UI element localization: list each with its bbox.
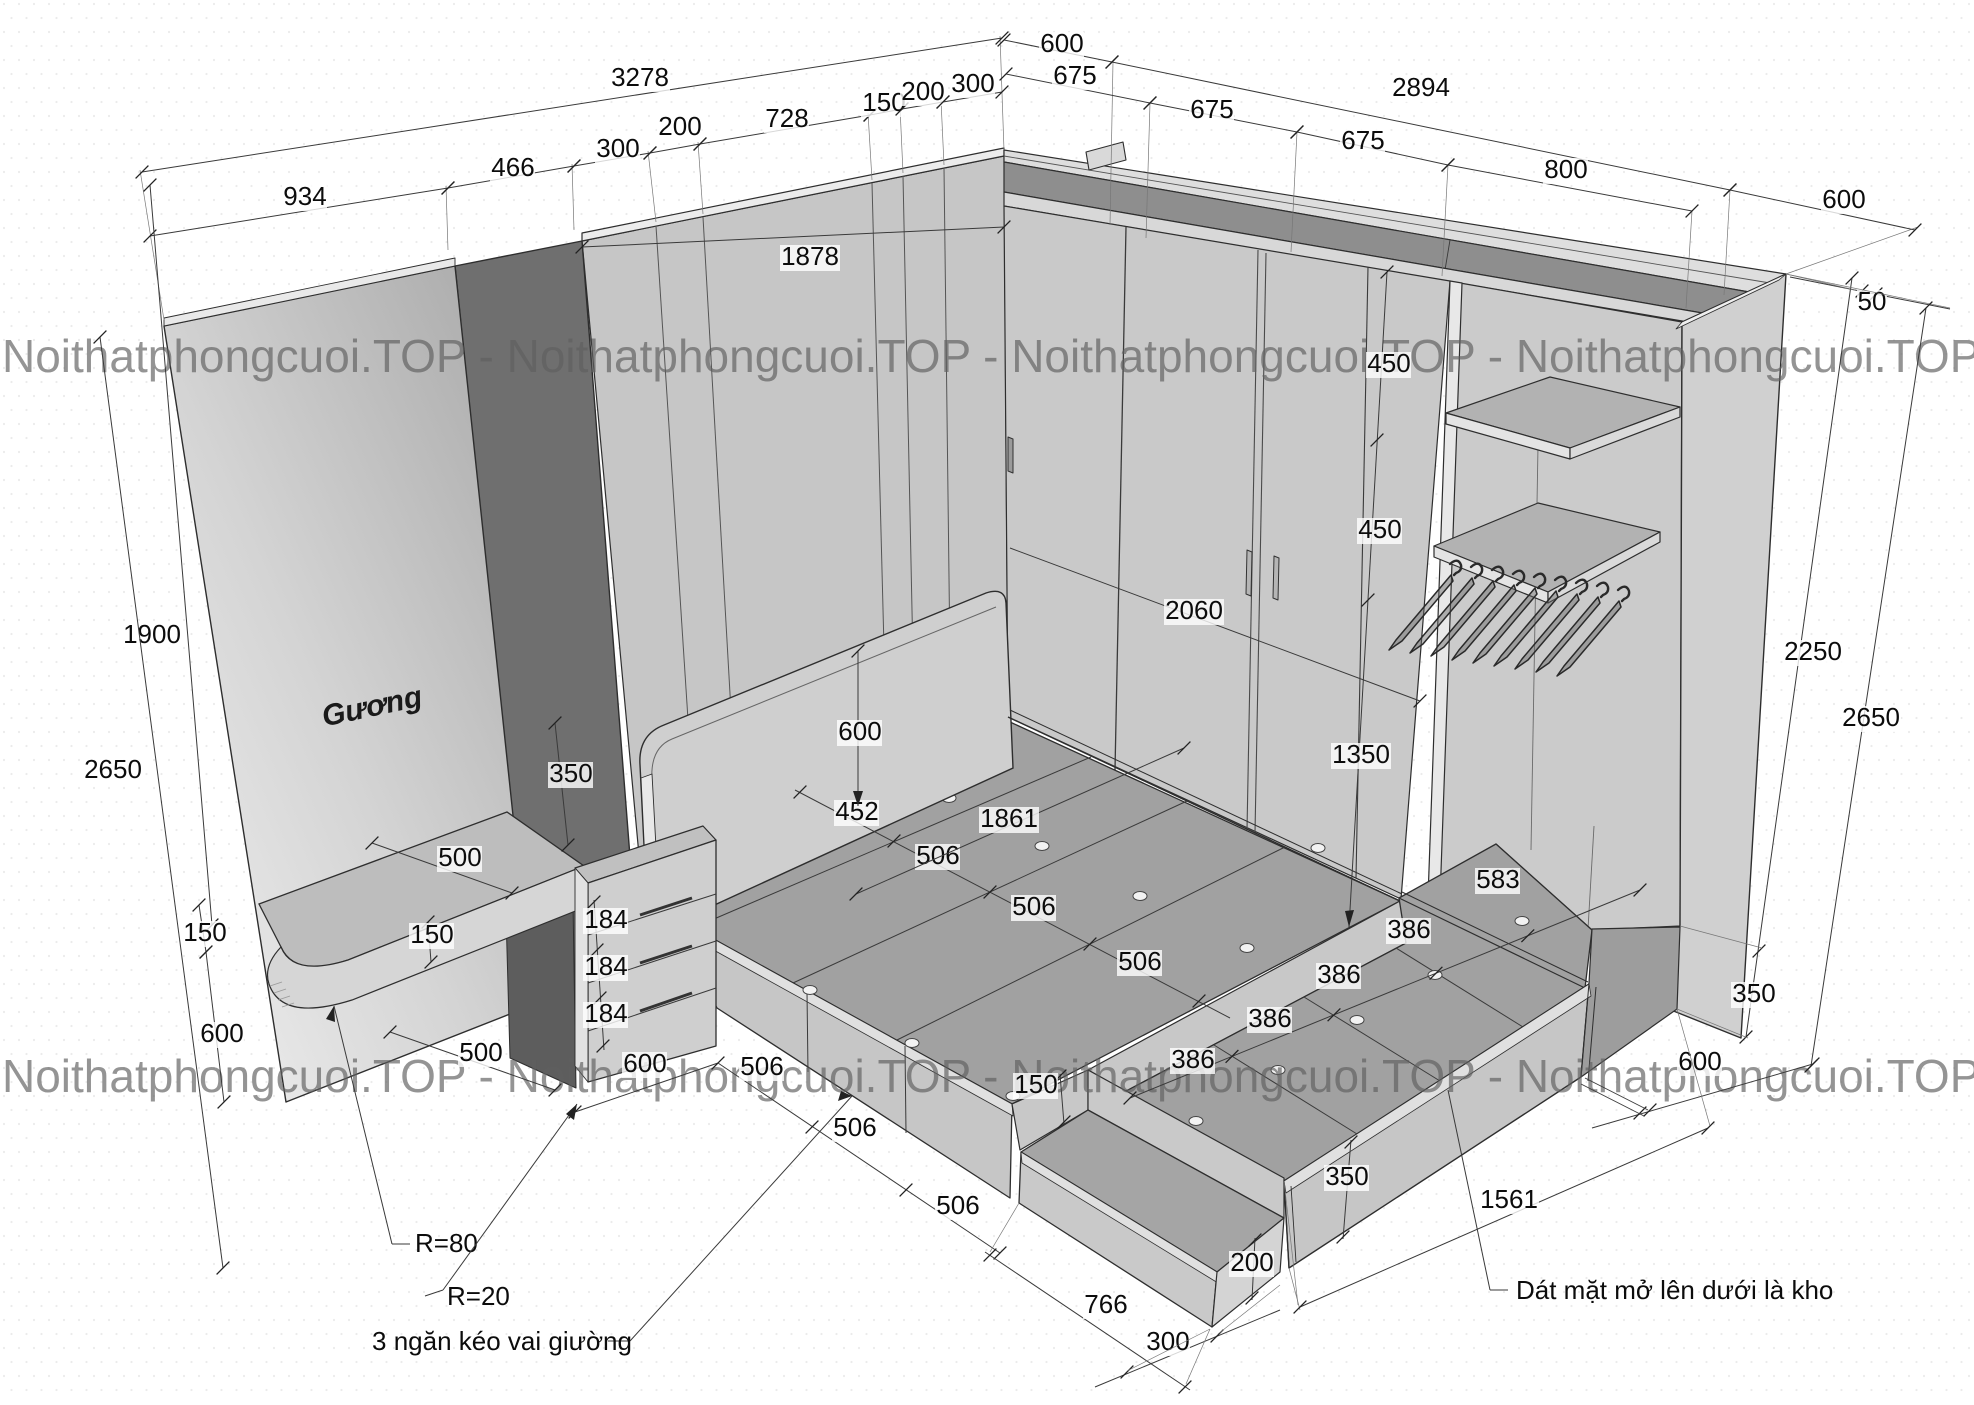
svg-text:2060: 2060 — [1165, 595, 1223, 625]
svg-text:500: 500 — [459, 1037, 502, 1067]
svg-text:R=80: R=80 — [415, 1228, 478, 1258]
svg-text:200: 200 — [901, 76, 944, 106]
svg-text:184: 184 — [584, 951, 627, 981]
svg-text:3278: 3278 — [611, 62, 669, 92]
svg-text:600: 600 — [838, 716, 881, 746]
svg-text:2894: 2894 — [1392, 72, 1450, 102]
svg-text:800: 800 — [1544, 154, 1587, 184]
svg-text:Noithatphongcuoi.TOP - Noithat: Noithatphongcuoi.TOP - Noithatphongcuoi.… — [2, 330, 1974, 382]
svg-text:386: 386 — [1171, 1044, 1214, 1074]
svg-text:200: 200 — [658, 111, 701, 141]
svg-text:1861: 1861 — [980, 803, 1038, 833]
svg-text:450: 450 — [1358, 514, 1401, 544]
svg-text:3 ngăn kéo vai giường: 3 ngăn kéo vai giường — [372, 1326, 632, 1356]
svg-text:300: 300 — [951, 68, 994, 98]
svg-text:600: 600 — [1040, 28, 1083, 58]
svg-text:150: 150 — [183, 917, 226, 947]
svg-text:350: 350 — [1732, 978, 1775, 1008]
svg-text:506: 506 — [916, 840, 959, 870]
svg-text:386: 386 — [1387, 914, 1430, 944]
svg-text:506: 506 — [936, 1190, 979, 1220]
svg-text:506: 506 — [740, 1051, 783, 1081]
svg-text:766: 766 — [1084, 1289, 1127, 1319]
svg-text:350: 350 — [1325, 1161, 1368, 1191]
svg-text:500: 500 — [438, 842, 481, 872]
svg-text:934: 934 — [283, 181, 326, 211]
svg-text:Dát mặt mở lên dưới là kho: Dát mặt mở lên dưới là kho — [1516, 1275, 1833, 1305]
svg-text:2650: 2650 — [84, 754, 142, 784]
svg-text:300: 300 — [596, 133, 639, 163]
svg-text:150: 150 — [410, 919, 453, 949]
svg-text:1561: 1561 — [1480, 1184, 1538, 1214]
svg-text:R=20: R=20 — [447, 1281, 510, 1311]
svg-text:600: 600 — [200, 1018, 243, 1048]
svg-text:450: 450 — [1367, 348, 1410, 378]
svg-text:50: 50 — [1858, 286, 1887, 316]
svg-text:2650: 2650 — [1842, 702, 1900, 732]
svg-text:728: 728 — [765, 103, 808, 133]
svg-text:300: 300 — [1146, 1326, 1189, 1356]
svg-text:506: 506 — [833, 1112, 876, 1142]
svg-text:583: 583 — [1476, 864, 1519, 894]
svg-text:675: 675 — [1190, 94, 1233, 124]
svg-text:1900: 1900 — [123, 619, 181, 649]
svg-text:600: 600 — [1822, 184, 1865, 214]
svg-text:1350: 1350 — [1332, 739, 1390, 769]
svg-text:675: 675 — [1053, 60, 1096, 90]
svg-text:184: 184 — [584, 998, 627, 1028]
svg-text:2250: 2250 — [1784, 636, 1842, 666]
svg-text:184: 184 — [584, 904, 627, 934]
svg-text:350: 350 — [549, 758, 592, 788]
svg-text:150: 150 — [1014, 1069, 1057, 1099]
svg-text:200: 200 — [1230, 1247, 1273, 1277]
svg-text:600: 600 — [623, 1048, 666, 1078]
svg-text:386: 386 — [1248, 1003, 1291, 1033]
svg-text:466: 466 — [491, 152, 534, 182]
svg-text:1878: 1878 — [781, 241, 839, 271]
svg-text:506: 506 — [1012, 891, 1055, 921]
svg-text:600: 600 — [1678, 1046, 1721, 1076]
svg-text:506: 506 — [1118, 946, 1161, 976]
svg-text:675: 675 — [1341, 125, 1384, 155]
svg-text:386: 386 — [1317, 959, 1360, 989]
